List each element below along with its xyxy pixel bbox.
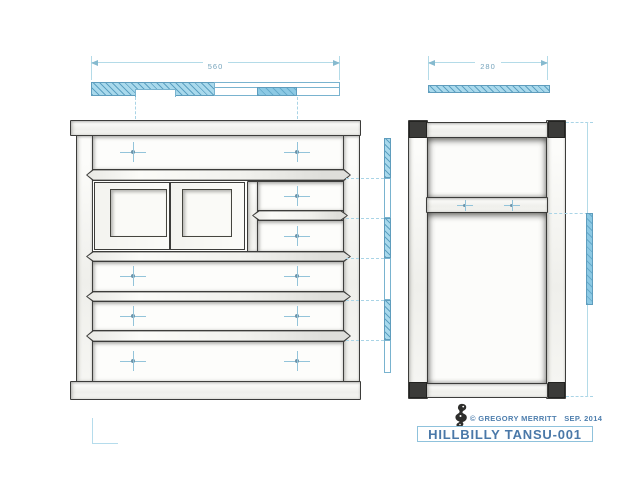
center-mark-icon — [504, 200, 520, 211]
plan-groove-notch — [135, 89, 176, 97]
side-depth-dimension: 280 — [429, 56, 547, 69]
center-mark-icon — [284, 186, 310, 206]
side-depth-label: 280 — [475, 60, 501, 73]
side-right-post — [546, 120, 566, 399]
side-upper-panel — [427, 137, 547, 198]
center-mark-icon — [120, 306, 146, 326]
dim-arrow-right-icon — [333, 60, 340, 66]
projection-dash — [566, 122, 593, 123]
plan-side-panel-section — [428, 85, 550, 93]
center-mark-icon — [120, 142, 146, 162]
front-width-dimension: 560 — [92, 56, 339, 69]
plan-door-panel-section — [257, 87, 297, 96]
center-mark-icon — [120, 266, 146, 286]
center-mark-icon — [284, 351, 310, 371]
post-section-block — [409, 121, 427, 138]
side-top-rail — [426, 122, 548, 138]
center-mark-icon — [284, 306, 310, 326]
side-panel-section-bar — [586, 213, 593, 305]
projection-dash — [566, 396, 593, 397]
rail-between-b-c — [86, 330, 351, 342]
rail-under-door-bay — [86, 251, 351, 262]
side-left-post — [408, 120, 428, 399]
dim-arrow-left-icon — [91, 60, 98, 66]
sheet-corner-bracket — [92, 418, 93, 444]
drawing-sheet: 560 280 — [0, 0, 640, 502]
front-top-cap — [70, 120, 361, 136]
post-section-block — [548, 121, 565, 138]
runner-gap-segment — [384, 258, 391, 300]
sheet-corner-bracket — [92, 443, 118, 444]
copyright-text: © GREGORY MERRITT SEP. 2014 — [470, 414, 602, 423]
projection-dash-right — [297, 97, 298, 119]
center-mark-icon — [284, 142, 310, 162]
center-mark-icon — [284, 266, 310, 286]
rail-under-top-drawer — [86, 169, 351, 181]
front-base-rail — [70, 381, 361, 400]
post-section-block — [548, 382, 565, 398]
runner-section-segment — [384, 218, 391, 258]
sliding-door-right-panel — [182, 189, 232, 237]
center-mark-icon — [120, 351, 146, 371]
projection-dash — [346, 218, 384, 219]
dim-arrow-left-icon — [428, 60, 435, 66]
runner-gap-segment — [384, 340, 391, 373]
drawing-title: HILLBILLY TANSU-001 — [417, 426, 593, 442]
side-middle-rail — [426, 197, 548, 213]
sliding-door-left-panel — [110, 189, 167, 237]
projection-dash — [346, 178, 384, 179]
rail-between-a-b — [86, 291, 351, 302]
runner-gap-segment — [384, 178, 391, 218]
side-lower-panel — [427, 212, 547, 384]
runner-section-segment — [384, 300, 391, 340]
center-mark-icon — [457, 200, 473, 211]
dim-arrow-right-icon — [541, 60, 548, 66]
front-width-label: 560 — [203, 60, 229, 73]
projection-dash — [346, 258, 384, 259]
runner-section-segment — [384, 138, 391, 178]
projection-dash — [346, 300, 384, 301]
rail-small-drawer-divider — [252, 210, 348, 221]
post-section-block — [409, 382, 427, 398]
projection-dash — [346, 340, 384, 341]
projection-dash-left — [135, 97, 136, 119]
side-bottom-rail — [426, 383, 548, 398]
center-mark-icon — [284, 226, 310, 246]
